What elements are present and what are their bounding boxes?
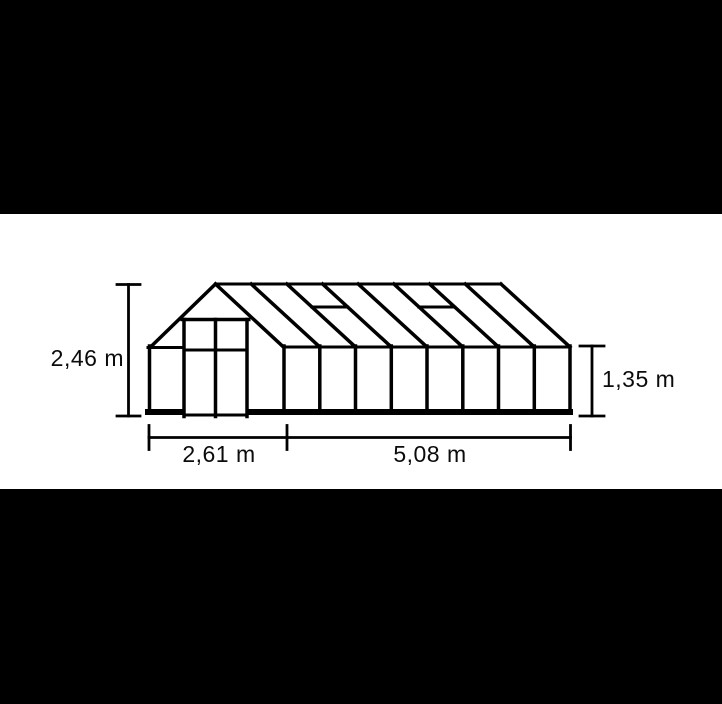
roof-rear-edge-bar xyxy=(501,284,570,347)
roof xyxy=(216,284,571,347)
roof-glazing-bar xyxy=(323,284,392,347)
width-label: 2,61 m xyxy=(182,441,255,467)
roof-glazing-bar xyxy=(251,284,320,347)
dimension-eave-height: 1,35 m xyxy=(580,346,675,416)
roof-glazing-bar xyxy=(394,284,463,347)
gable-right-slope xyxy=(216,284,285,348)
page: 2,46 m 1,35 m 2,61 m 5,08 m xyxy=(0,0,722,704)
roof-glazing-bar xyxy=(287,284,356,347)
dimension-width-length: 2,61 m 5,08 m xyxy=(149,426,571,468)
gable-front xyxy=(148,284,284,417)
roof-glazing-bar xyxy=(430,284,499,347)
roof-glazing-bar xyxy=(465,284,534,347)
dimension-total-height: 2,46 m xyxy=(51,285,140,417)
roof-glazing-bar xyxy=(358,284,427,347)
length-label: 5,08 m xyxy=(393,441,466,467)
total-height-label: 2,46 m xyxy=(51,345,124,371)
greenhouse-dimension-diagram: 2,46 m 1,35 m 2,61 m 5,08 m xyxy=(0,0,722,704)
eave-height-label: 1,35 m xyxy=(602,366,675,392)
side-wall xyxy=(284,346,570,411)
